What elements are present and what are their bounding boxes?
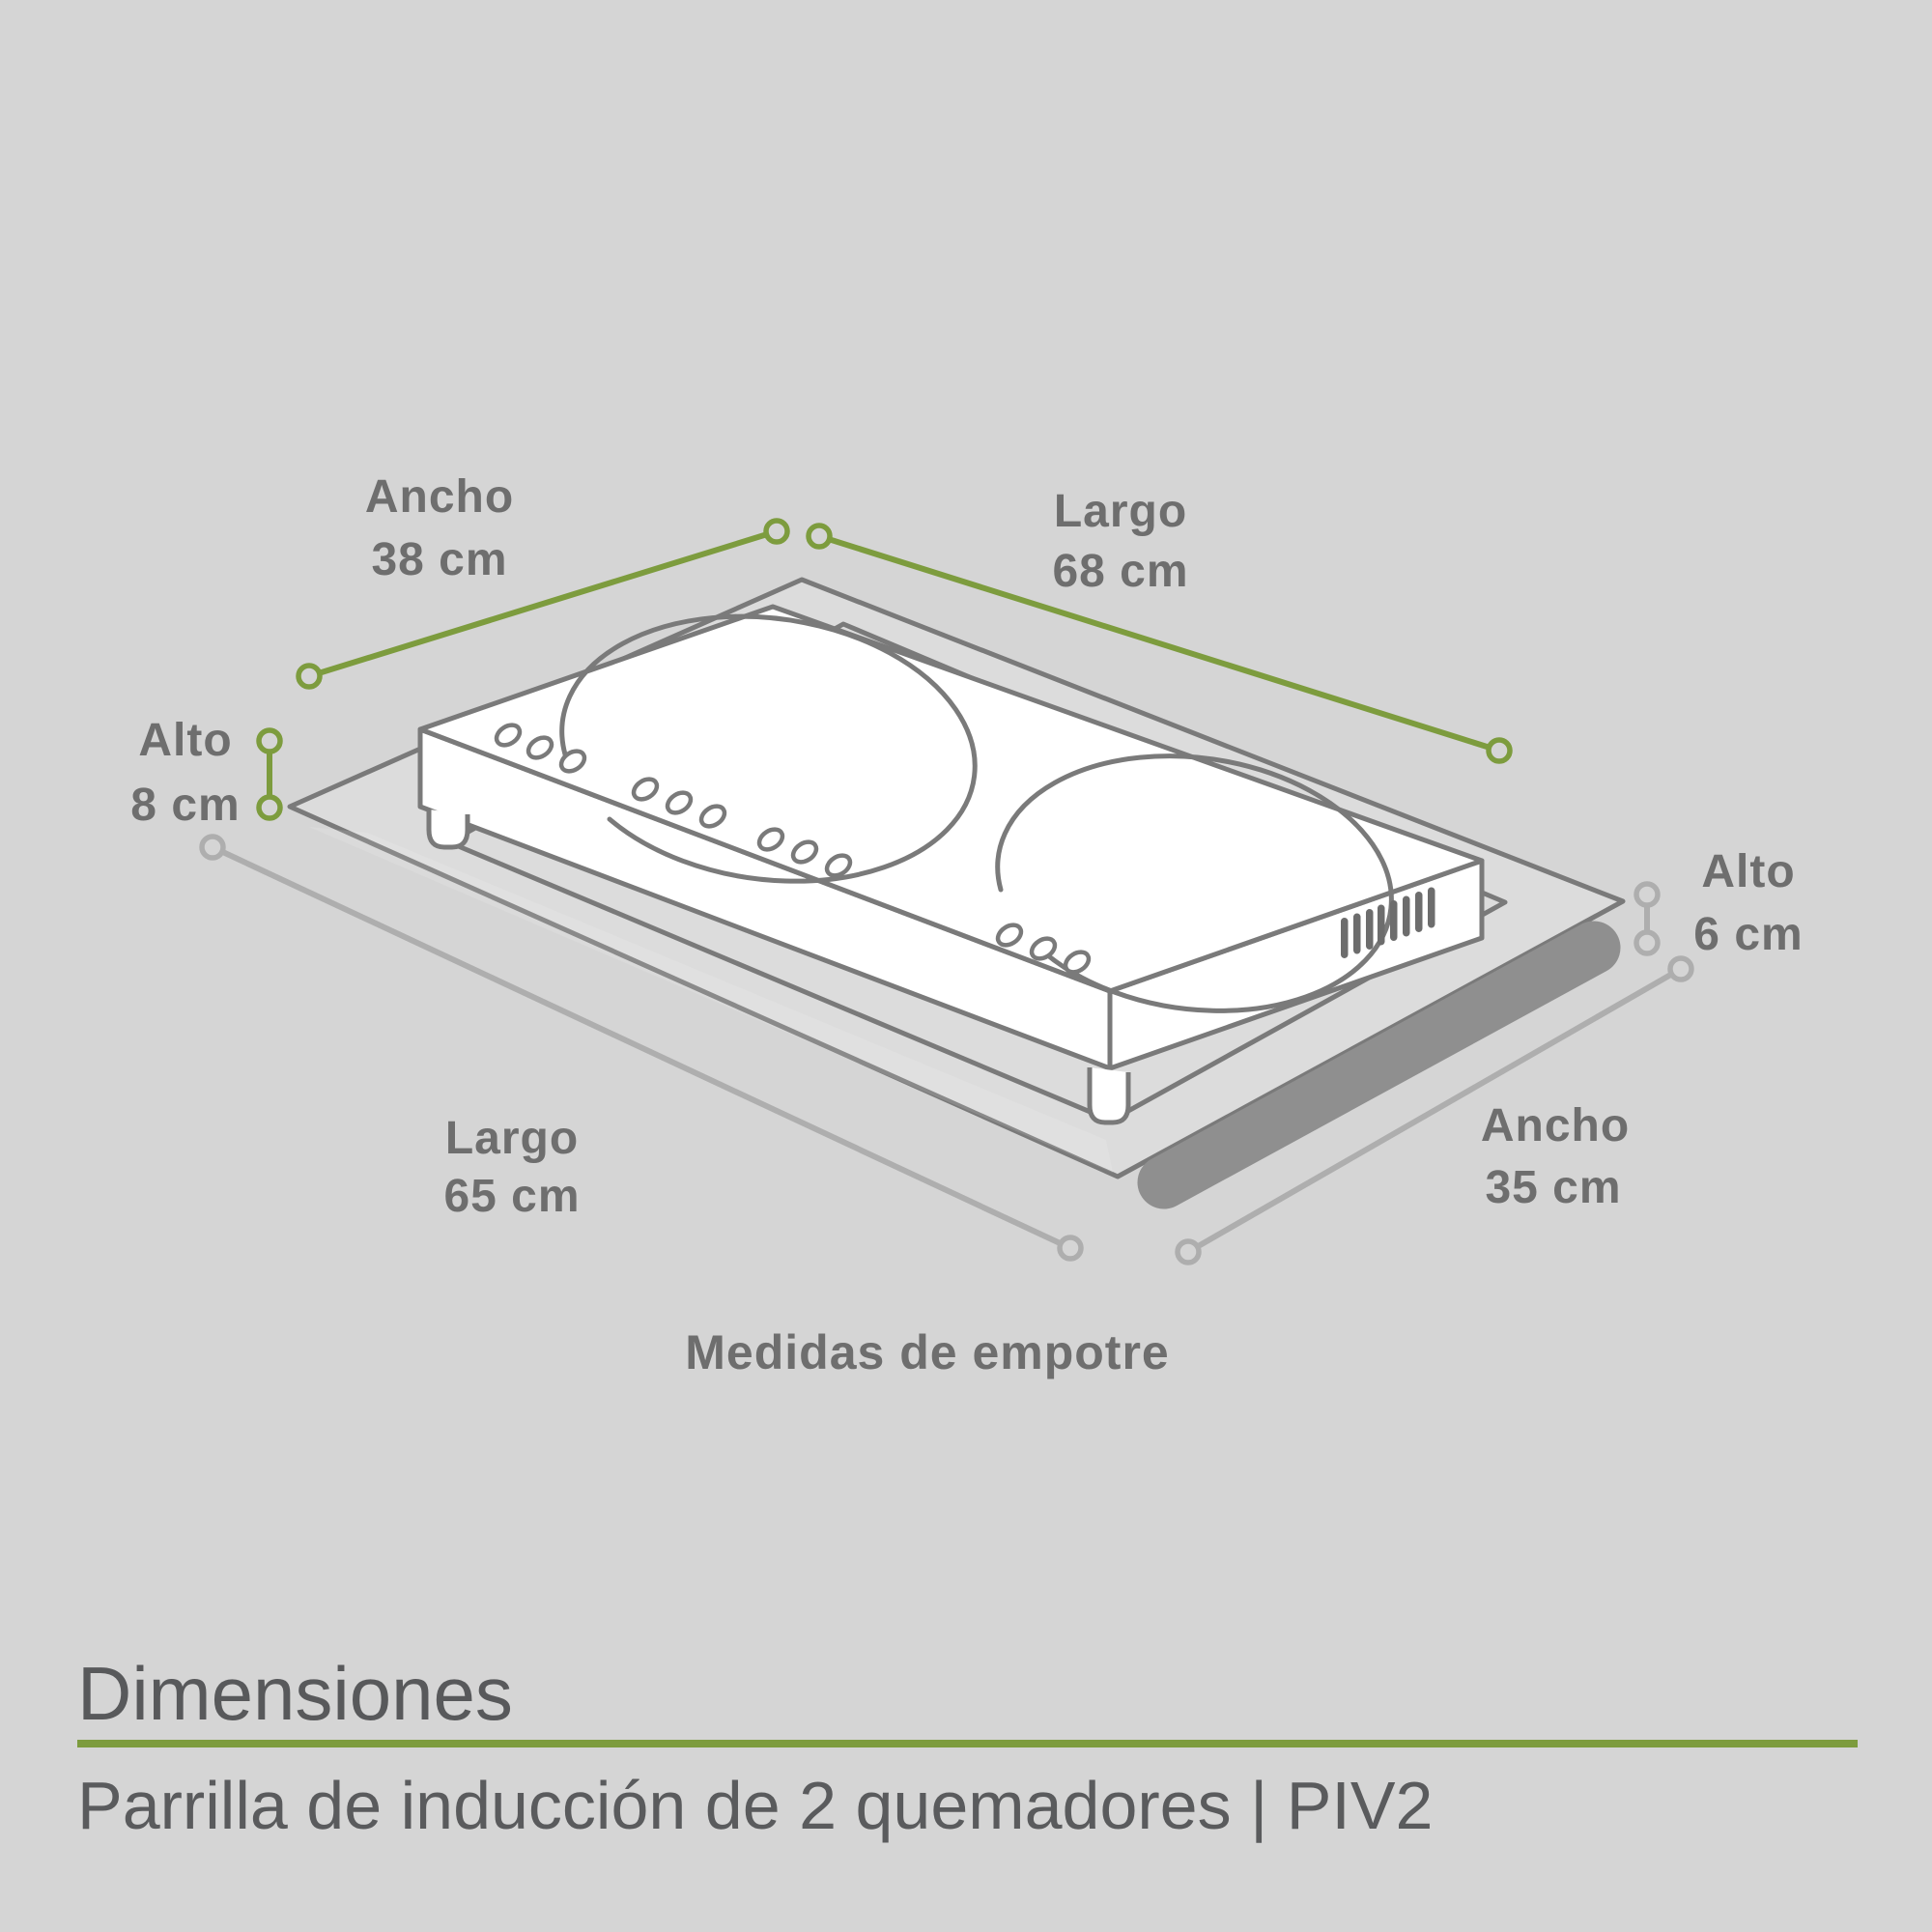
dim-endpoint bbox=[202, 837, 223, 858]
label-ancho-top: Ancho bbox=[365, 471, 514, 523]
dim-endpoint bbox=[766, 521, 787, 542]
dim-endpoint bbox=[1636, 884, 1658, 905]
footer-divider bbox=[77, 1740, 1858, 1747]
label-largo-top: Largo bbox=[1054, 486, 1187, 537]
dim-endpoint bbox=[1060, 1237, 1081, 1259]
label-largo-bottom: Largo bbox=[445, 1113, 579, 1164]
label-alto-right: Alto bbox=[1701, 846, 1795, 897]
value-alto-right: 6 cm bbox=[1693, 909, 1803, 960]
dim-endpoint bbox=[259, 797, 280, 818]
dim-endpoint bbox=[1636, 932, 1658, 953]
dim-endpoint bbox=[1178, 1241, 1199, 1263]
dim-endpoint bbox=[1489, 740, 1510, 761]
diagram-canvas: Ancho 38 cm Largo 68 cm Alto 8 cm Alto 6… bbox=[0, 0, 1932, 1932]
value-alto-left: 8 cm bbox=[130, 780, 240, 831]
cooktop-foot-left bbox=[429, 810, 468, 847]
value-ancho-bottom: 35 cm bbox=[1485, 1162, 1621, 1213]
dim-endpoint bbox=[259, 730, 280, 752]
value-ancho-top: 38 cm bbox=[371, 534, 507, 585]
dim-endpoint bbox=[809, 526, 830, 547]
label-alto-left: Alto bbox=[138, 715, 232, 766]
footer-title: Dimensiones bbox=[77, 1651, 513, 1736]
dimensions-infographic: Ancho 38 cm Largo 68 cm Alto 8 cm Alto 6… bbox=[0, 0, 1932, 1932]
dim-endpoint bbox=[1670, 958, 1691, 980]
cooktop-foot-front bbox=[1090, 1067, 1128, 1122]
diagram-caption: Medidas de empotre bbox=[685, 1325, 1169, 1379]
footer-subtitle: Parrilla de inducción de 2 quemadores | … bbox=[77, 1768, 1433, 1843]
value-largo-bottom: 65 cm bbox=[443, 1171, 580, 1222]
value-largo-top: 68 cm bbox=[1052, 546, 1188, 597]
label-ancho-bottom: Ancho bbox=[1481, 1100, 1630, 1151]
dim-endpoint bbox=[298, 666, 320, 687]
